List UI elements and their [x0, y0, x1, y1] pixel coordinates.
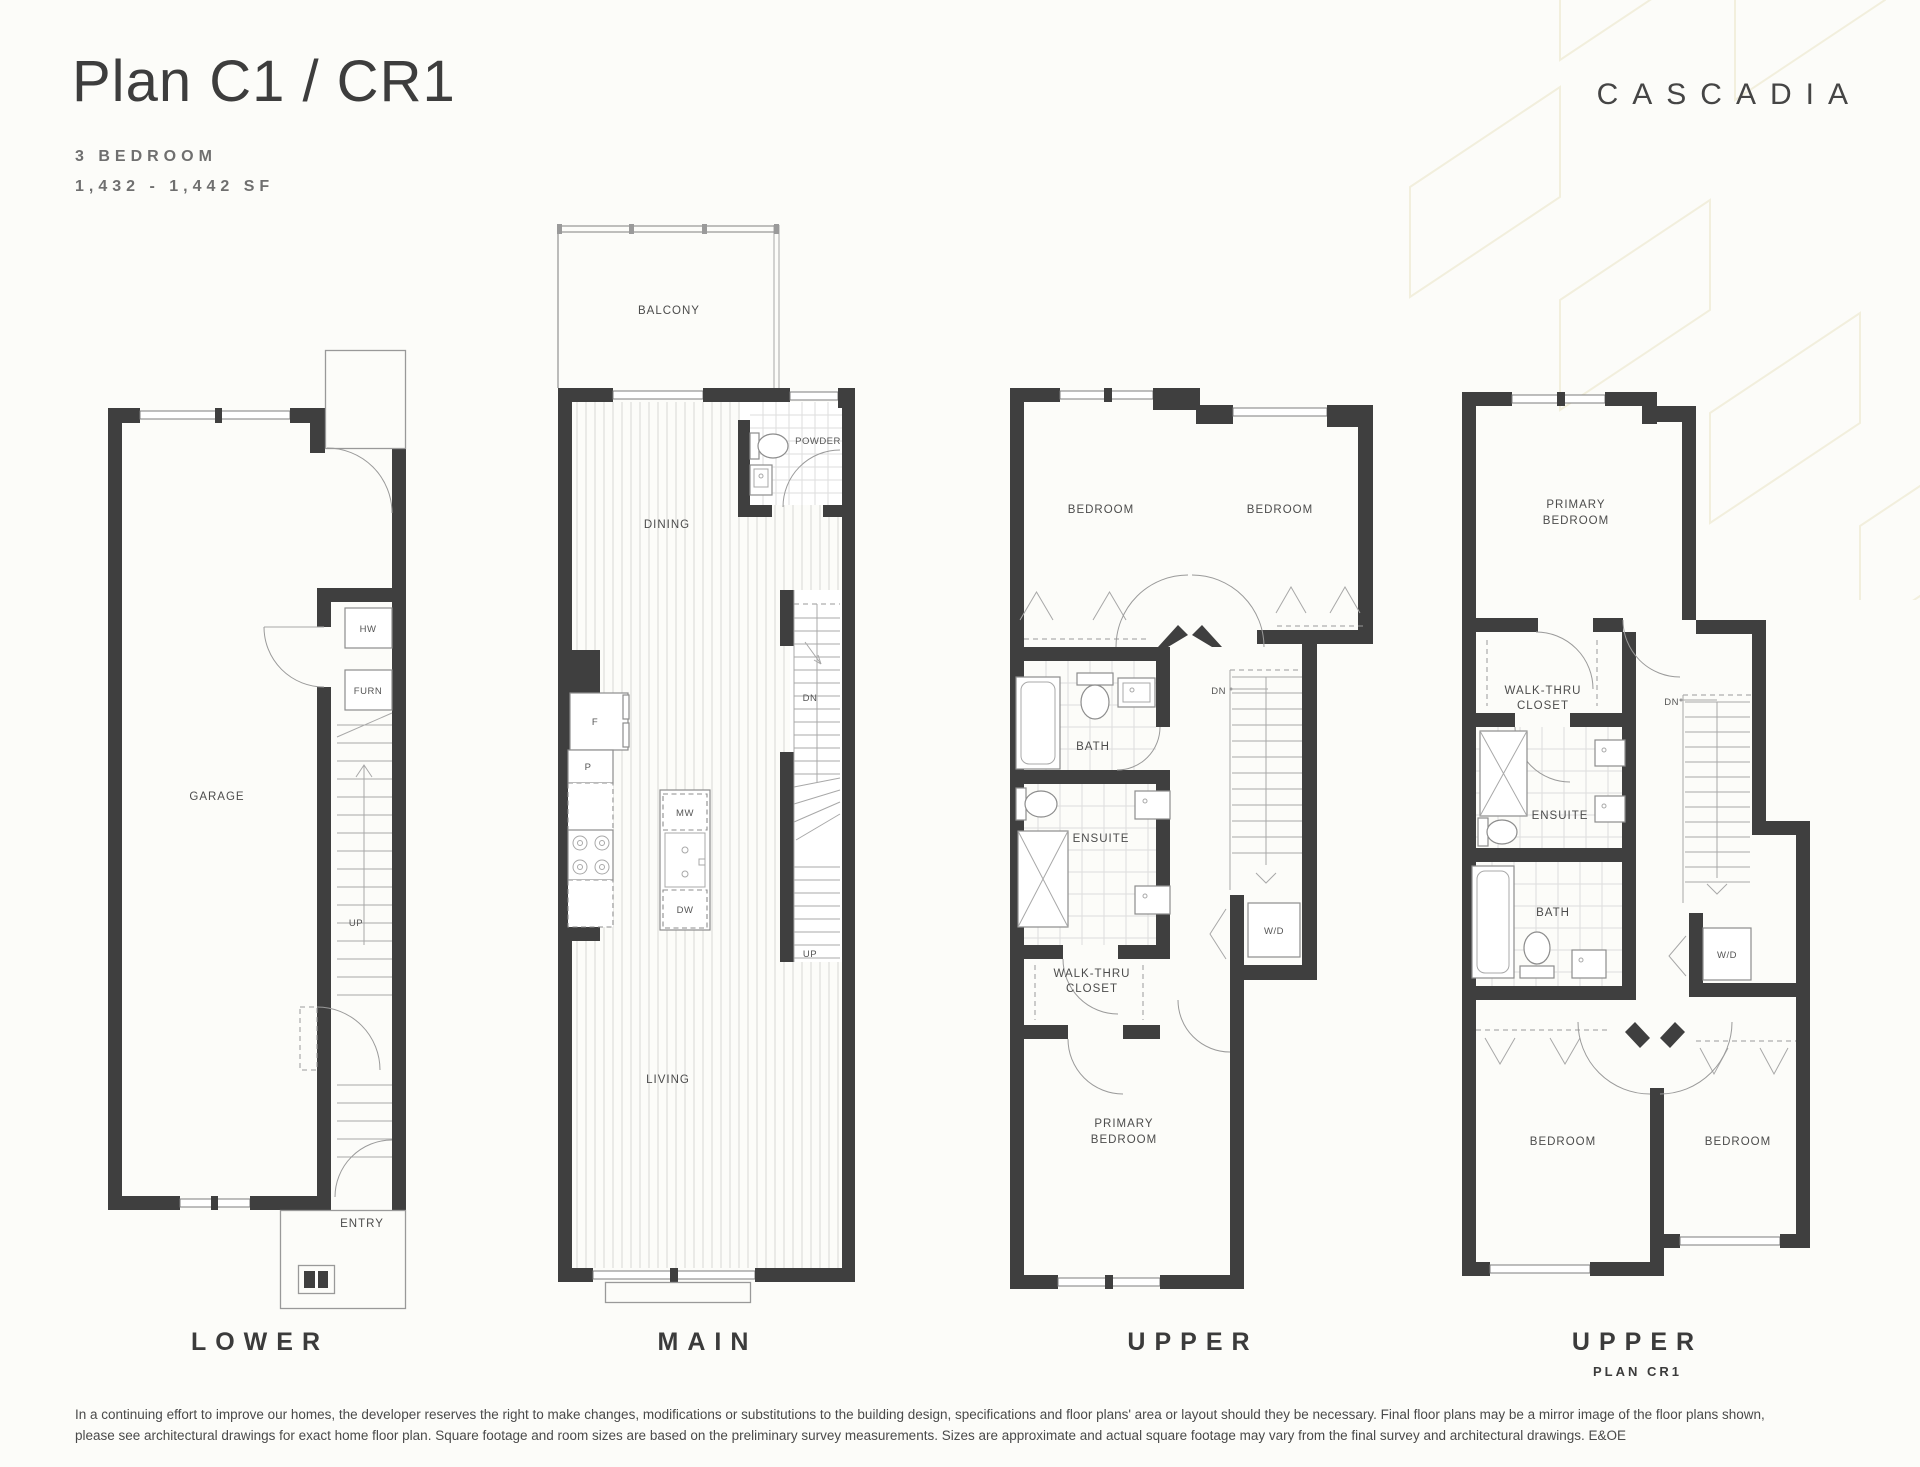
disclaimer: In a continuing effort to improve our ho… — [75, 1404, 1875, 1446]
ensuite-sink-icons — [1595, 740, 1625, 822]
lower-walls — [108, 408, 406, 1210]
bedroom-left-closet — [1020, 592, 1148, 639]
dn-label: DN — [1664, 697, 1679, 708]
bedroom-left-label: BEDROOM — [1530, 1136, 1596, 1148]
kitchen-island: MW DW — [660, 790, 710, 930]
walkthru-label-line1: WALK-THRU — [1505, 685, 1582, 697]
lower-stairs: UP — [337, 713, 392, 1157]
ensuite-label: ENSUITE — [1073, 833, 1130, 845]
caption-upper: UPPER — [1008, 1328, 1378, 1357]
washer-dryer: W/D — [1210, 903, 1300, 959]
floor-plan-main: BALCONY POWDER DINING — [555, 222, 860, 1314]
bedroom-right-closet — [1696, 1041, 1796, 1074]
bedroom-double-doors — [1578, 1022, 1732, 1094]
dn-label: DN — [1211, 686, 1226, 697]
powder-label: POWDER — [795, 436, 841, 447]
microwave-label: MW — [676, 808, 694, 819]
walkthru-label-line1: WALK-THRU — [1054, 968, 1131, 980]
upper-stairs: DN — [1211, 670, 1302, 890]
primary-label-line1: PRIMARY — [1546, 499, 1605, 511]
primary-door-arc — [1178, 1000, 1230, 1052]
bath-toilet-icon — [1077, 673, 1113, 719]
shower-icon — [1480, 731, 1527, 816]
wd-label: W/D — [1717, 950, 1737, 961]
bath-sink-icon — [1118, 678, 1155, 707]
disclaimer-line2: please see architectural drawings for ex… — [75, 1425, 1875, 1446]
dn-label: DN — [803, 693, 818, 704]
bathtub-icon — [1472, 866, 1514, 978]
ensuite-label: ENSUITE — [1532, 810, 1589, 822]
up-label: UP — [803, 949, 817, 960]
floor-plan-upper: BATH ENSUITE WALK-THRU CLOSET DN W/D BED… — [1008, 385, 1378, 1297]
floor-plan-upper-cr1: PRIMARY BEDROOM WALK-THRU CLOSET ENSUITE… — [1460, 388, 1815, 1293]
pantry-label: P — [585, 762, 592, 773]
fridge: F — [570, 693, 629, 750]
garage-label: GARAGE — [189, 791, 244, 803]
bedroom-right-closet — [1276, 587, 1363, 626]
page-title: Plan C1 / CR1 — [72, 48, 456, 115]
entry-label: ENTRY — [340, 1218, 384, 1230]
closet-door — [264, 627, 324, 687]
powder-sink-icon — [750, 465, 772, 495]
disclaimer-line1: In a continuing effort to improve our ho… — [75, 1404, 1875, 1425]
bedroom-right-label: BEDROOM — [1705, 1136, 1771, 1148]
shower-icon — [1018, 831, 1068, 927]
caption-main: MAIN — [555, 1328, 860, 1357]
furn-label: FURN — [354, 686, 382, 697]
bedroom-right-label: BEDROOM — [1247, 504, 1313, 516]
ensuite-toilet-icon — [1016, 788, 1057, 820]
ensuite-toilet-icon — [1478, 818, 1517, 846]
powder-toilet-icon — [750, 433, 788, 459]
caption-upper-cr1-sub: PLAN CR1 — [1460, 1364, 1815, 1379]
range-icon — [568, 830, 613, 880]
bath-label: BATH — [1076, 741, 1110, 753]
pantry: P — [568, 750, 613, 783]
washer-dryer: W/D — [1669, 928, 1751, 980]
hot-water-tank: HW — [345, 608, 392, 648]
bath-sink-icon — [1572, 950, 1606, 978]
counter-lower — [568, 880, 613, 927]
wd-label: W/D — [1264, 926, 1284, 937]
counter-upper — [568, 783, 613, 830]
walkthru-label-line2: CLOSET — [1066, 983, 1118, 995]
entry-step — [606, 1283, 751, 1303]
caption-lower: LOWER — [100, 1328, 420, 1357]
bedroom-left-closet — [1476, 1030, 1610, 1064]
square-footage-subtitle: 1,432 - 1,442 SF — [75, 178, 274, 196]
fridge-label: F — [592, 717, 598, 728]
walkthru-label-line2: CLOSET — [1517, 700, 1569, 712]
floorplan-sheet: { "header": { "title": "Plan C1 / CR1", … — [0, 0, 1920, 1467]
dining-label: DINING — [644, 519, 690, 531]
cr1-stairs: DN — [1664, 695, 1752, 903]
primary-label-line1: PRIMARY — [1094, 1118, 1153, 1130]
up-label: UP — [349, 918, 363, 929]
entry-mat — [299, 1266, 335, 1294]
garage-bumpout — [326, 351, 406, 449]
bath-toilet-icon — [1520, 932, 1554, 978]
caption-upper-cr1: UPPER — [1460, 1328, 1815, 1357]
entry-door-arc — [335, 1140, 392, 1197]
closet-door-arc — [1536, 632, 1593, 689]
living-label: LIVING — [646, 1074, 690, 1086]
floor-plan-lower: HW FURN UP GARAGE ENTRY — [100, 345, 420, 1320]
dishwasher-label: DW — [677, 905, 694, 916]
bedroom-left-label: BEDROOM — [1068, 504, 1134, 516]
bathtub-icon — [1016, 677, 1060, 769]
bedroom-double-doors — [1116, 575, 1264, 647]
garage-to-stairs-door — [300, 1007, 380, 1070]
bath-label: BATH — [1536, 907, 1570, 919]
balcony-label: BALCONY — [638, 305, 700, 317]
bedroom-count-subtitle: 3 BEDROOM — [75, 148, 217, 166]
primary-label-line2: BEDROOM — [1091, 1134, 1157, 1146]
cascadia-logo: CASCADIA — [1597, 78, 1862, 112]
primary-label-line2: BEDROOM — [1543, 515, 1609, 527]
furnace: FURN — [345, 670, 392, 710]
hw-label: HW — [360, 624, 377, 635]
bumpout-door-arc — [327, 448, 392, 513]
